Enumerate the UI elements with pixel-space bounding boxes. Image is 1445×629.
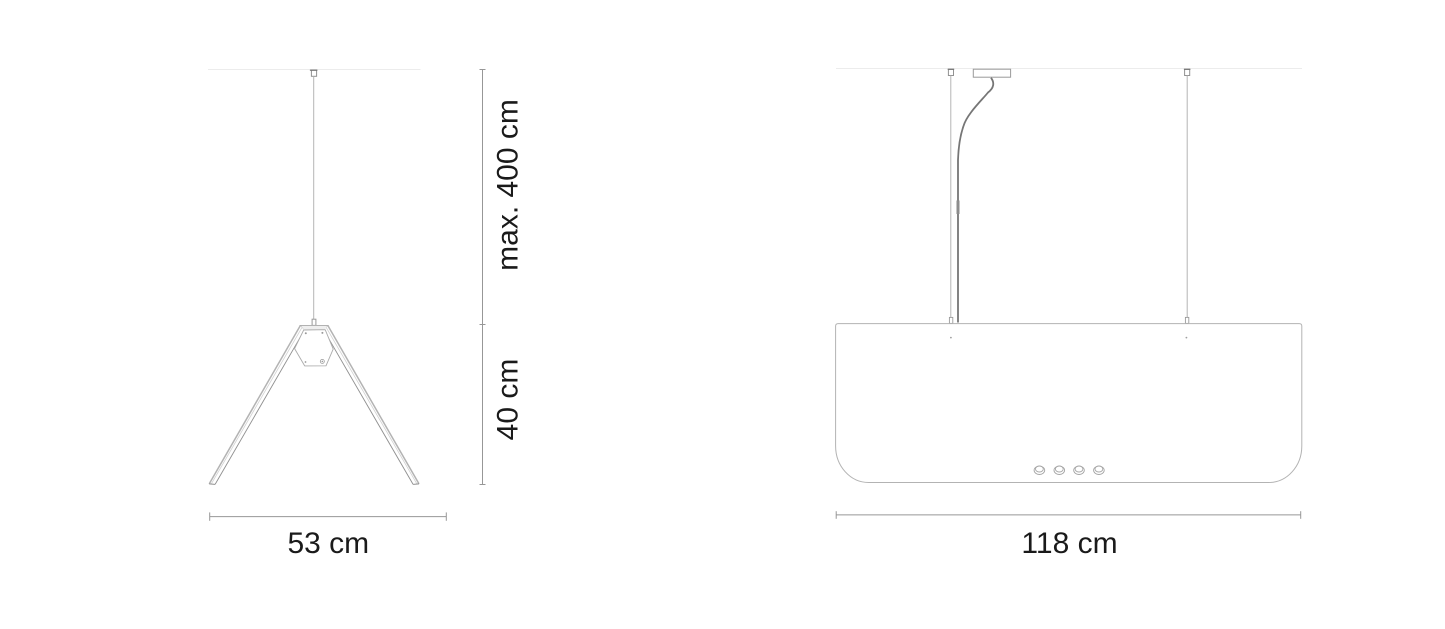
svg-text:40 cm: 40 cm [492,359,525,441]
svg-text:118 cm: 118 cm [1021,527,1117,560]
svg-text:53 cm: 53 cm [287,527,369,560]
svg-text:max. 400 cm: max. 400 cm [492,99,525,271]
